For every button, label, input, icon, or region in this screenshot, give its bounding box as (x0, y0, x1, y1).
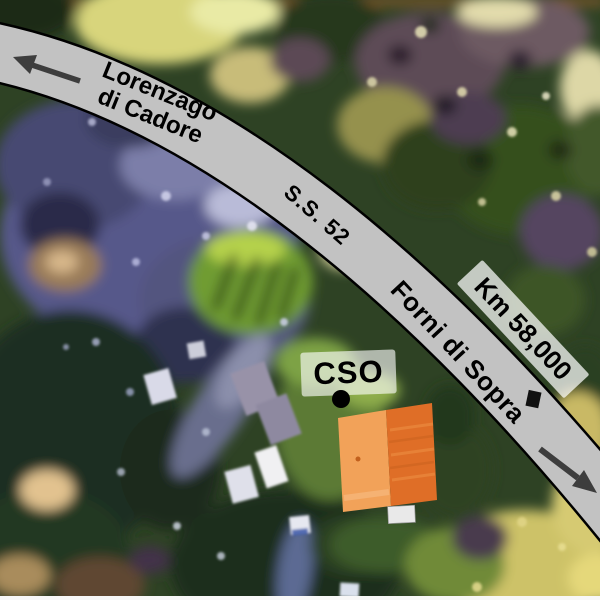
trailer-blob (388, 505, 416, 523)
site-label-patch: CSO (300, 349, 396, 396)
image-bottom-strip (0, 596, 600, 600)
site-marker-dot (332, 390, 350, 408)
aerial-map-figure: CSO Lorenzago di Cadore S.S. 52 Forni di… (0, 0, 600, 600)
vehicle-blob (187, 341, 207, 360)
vehicle-blob (340, 583, 360, 598)
roof-detail (356, 457, 361, 462)
site-label: CSO (313, 354, 384, 392)
